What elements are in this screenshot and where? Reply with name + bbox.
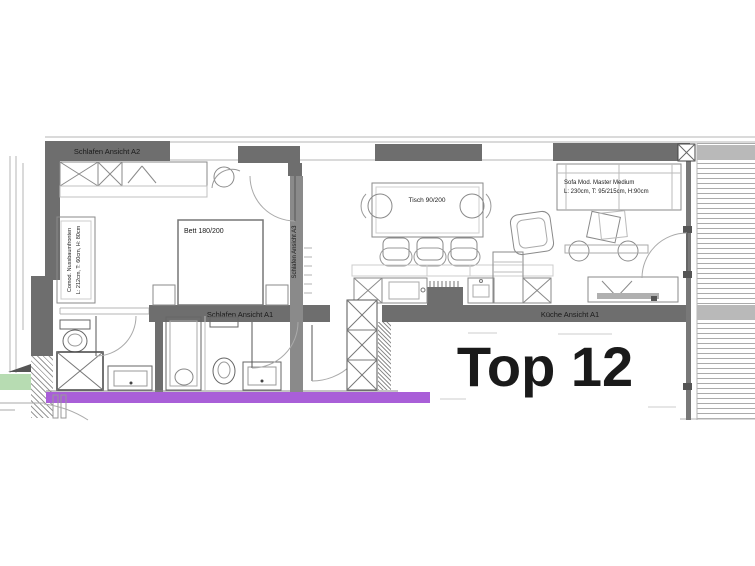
chair xyxy=(460,194,484,218)
washbasin-2 xyxy=(243,362,281,390)
floor-plan-page: Schlafen Ansicht A2 Schlafen Ansicht A1 … xyxy=(0,0,755,566)
label-bed: Bett 180/200 xyxy=(184,228,224,235)
label-schlafen-a2: Schlafen Ansicht A2 xyxy=(74,147,140,156)
wall-top-4 xyxy=(553,143,690,161)
label-kueche-a1: Küche Ansicht A1 xyxy=(541,310,599,319)
bathrooms xyxy=(57,316,298,390)
label-dining-table: Tisch 90/200 xyxy=(409,197,446,204)
balcony-door-arc xyxy=(642,233,687,278)
toilet-cistern xyxy=(60,320,90,329)
chair xyxy=(451,238,477,260)
armchair xyxy=(509,210,554,255)
dining-area xyxy=(361,183,491,266)
wardrobe-shelf xyxy=(60,186,207,197)
dining-table xyxy=(372,183,483,237)
label-schlafen-a3-vertical: Schlafen Ansicht A3 xyxy=(292,225,298,279)
chair xyxy=(569,241,589,261)
tall-cabinet xyxy=(493,252,523,303)
wardrobe xyxy=(60,162,207,186)
accent-purple-bar xyxy=(46,392,430,403)
chair xyxy=(618,241,638,261)
stool xyxy=(214,167,234,187)
wall-right xyxy=(686,161,691,420)
label-sideboard-1: Comod. Nussbaumfronten xyxy=(67,228,73,292)
wall-room-divider xyxy=(290,176,303,393)
wall-bath-divider xyxy=(155,310,163,392)
wall-left-lower xyxy=(31,276,53,356)
kitchen-block xyxy=(427,287,463,322)
swing-arrow xyxy=(212,169,240,188)
bedroom-door-arc xyxy=(250,176,295,221)
dimension-ticks xyxy=(304,248,312,293)
sink xyxy=(389,282,419,299)
door-post xyxy=(683,383,692,390)
label-sideboard-2: L: 212cm, T: 60cm, H: 80cm xyxy=(76,225,82,294)
console-table xyxy=(565,245,648,253)
label-schlafen-a1: Schlafen Ansicht A1 xyxy=(207,310,273,319)
faucet xyxy=(421,288,425,292)
drainer xyxy=(430,281,458,287)
wall-light-kueche xyxy=(697,305,755,320)
label-sofa-1: Sofa Mod. Master Medium xyxy=(564,180,634,186)
oven xyxy=(468,278,494,303)
wall-top-2-step xyxy=(288,163,302,176)
bedroom xyxy=(57,162,295,305)
door-post xyxy=(683,226,692,233)
wall-top-2 xyxy=(238,146,300,163)
chair xyxy=(417,238,443,260)
wall-light-top xyxy=(697,145,755,160)
wedge xyxy=(8,364,31,372)
toilet xyxy=(63,330,87,352)
unit-title: Top 12 xyxy=(457,335,633,398)
label-sofa-2: L: 230cm, T: 95/215cm, H:90cm xyxy=(564,189,649,195)
wall-top-3 xyxy=(375,144,482,161)
shower-2 xyxy=(166,317,201,390)
accent-green-block xyxy=(0,374,31,390)
chair xyxy=(383,238,409,260)
nightstand-left xyxy=(153,285,175,305)
nightstand-right xyxy=(266,285,288,305)
bath-door-arc xyxy=(96,316,136,356)
floor-plan-drawing: Schlafen Ansicht A2 Schlafen Ansicht A1 … xyxy=(0,0,755,566)
